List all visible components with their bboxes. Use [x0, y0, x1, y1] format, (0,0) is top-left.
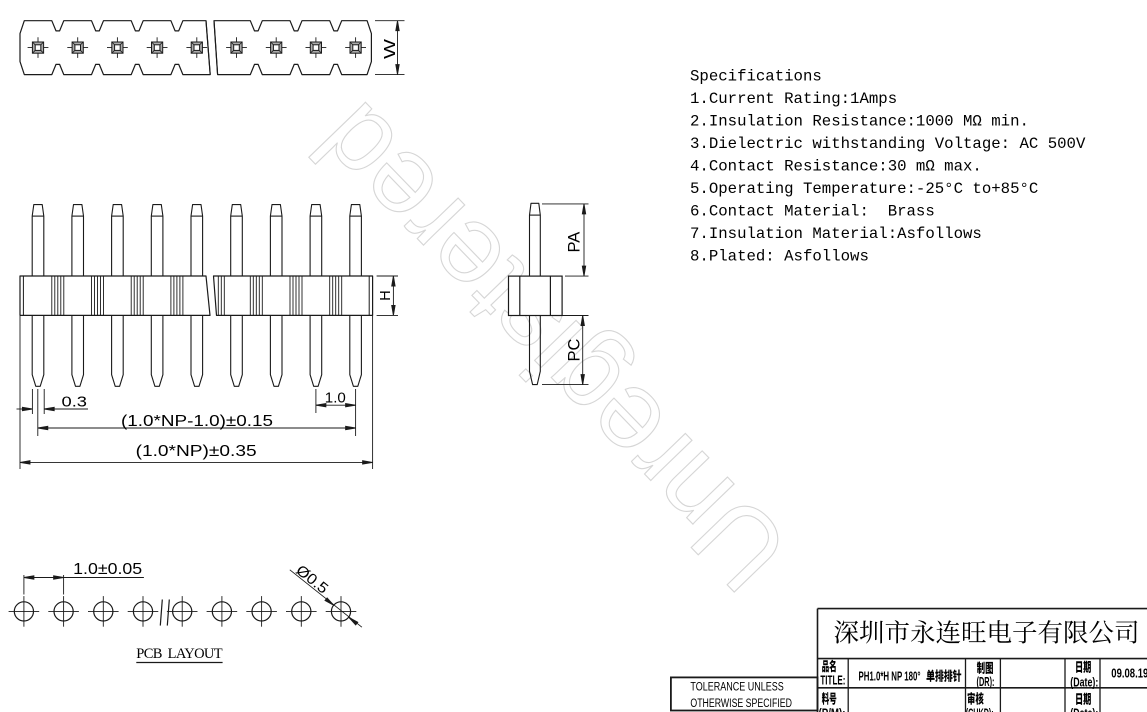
svg-text:6.Contact Material: Brass: 6.Contact Material: Brass: [690, 203, 935, 221]
svg-text:PCB LAYOUT: PCB LAYOUT: [136, 646, 222, 662]
svg-text:0.3: 0.3: [62, 394, 88, 410]
svg-text:(1.0*NP-1.0)±0.15: (1.0*NP-1.0)±0.15: [121, 413, 273, 430]
svg-text:Specifications: Specifications: [690, 67, 822, 85]
svg-text:7.Insulation Material:Asfollow: 7.Insulation Material:Asfollows: [690, 225, 982, 243]
svg-text:09.08.19: 09.08.19: [1111, 665, 1147, 680]
svg-text:(DR):: (DR):: [977, 675, 995, 689]
svg-text:H: H: [378, 290, 394, 300]
svg-text:(1.0*NP)±0.35: (1.0*NP)±0.35: [136, 443, 257, 460]
svg-text:(CHKD):: (CHKD):: [966, 707, 994, 712]
svg-text:TOLERANCE UNLESS: TOLERANCE UNLESS: [690, 682, 784, 694]
svg-text:PA: PA: [566, 232, 584, 253]
svg-text:2.Insulation Resistance:1000 M: 2.Insulation Resistance:1000 MΩ min.: [690, 112, 1029, 130]
svg-text:(Date):: (Date):: [1070, 707, 1098, 712]
svg-text:PH1.0*H NP 180°: PH1.0*H NP 180°: [859, 669, 921, 684]
svg-text:1.0±0.05: 1.0±0.05: [73, 561, 142, 578]
svg-text:4.Contact Resistance:30 mΩ max: 4.Contact Resistance:30 mΩ max.: [690, 158, 982, 176]
svg-text:(P/M):: (P/M):: [819, 707, 846, 712]
svg-text:OTHERWISE SPECIFIED: OTHERWISE SPECIFIED: [690, 698, 792, 710]
svg-text:1.0: 1.0: [325, 391, 346, 407]
svg-text:1.Current Rating:1Amps: 1.Current Rating:1Amps: [690, 90, 897, 108]
svg-text:TITLE:: TITLE:: [820, 673, 845, 687]
svg-text:3.Dielectric withstanding Volt: 3.Dielectric withstanding Voltage: AC 50…: [690, 135, 1086, 153]
svg-text:8.Plated: Asfollows: 8.Plated: Asfollows: [690, 248, 869, 266]
svg-text:Ø0.5: Ø0.5: [293, 562, 332, 598]
svg-text:PC: PC: [566, 338, 584, 361]
svg-text:W: W: [382, 38, 399, 59]
svg-text:5.Operating Temperature:-25°C: 5.Operating Temperature:-25°C to+85°C: [690, 180, 1038, 198]
svg-text:(Date):: (Date):: [1070, 675, 1098, 689]
